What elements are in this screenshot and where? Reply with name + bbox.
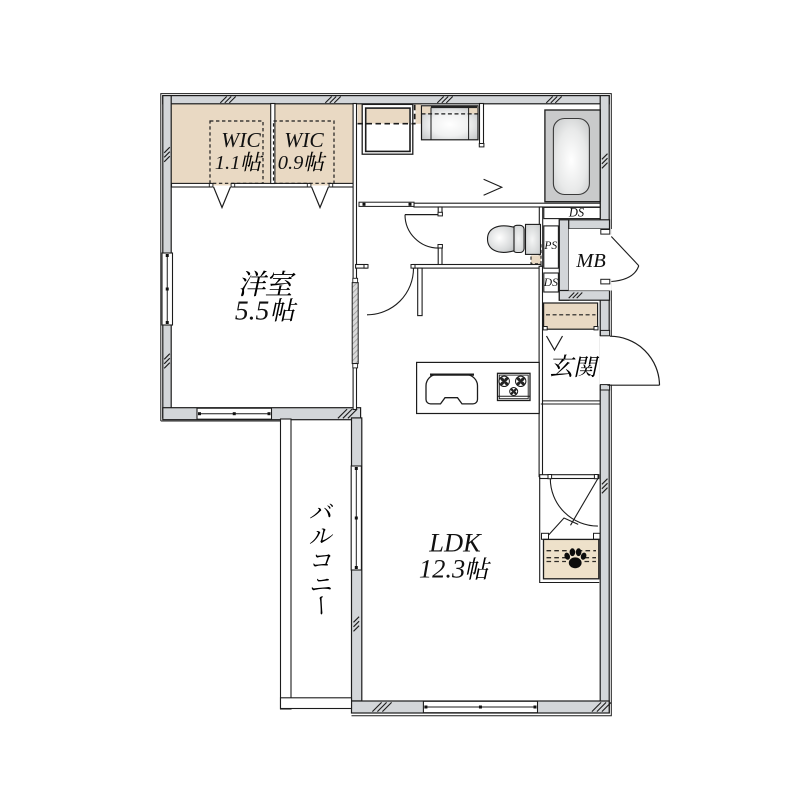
svg-text:1.1: 1.1 xyxy=(215,152,241,174)
svg-text:MB: MB xyxy=(575,250,606,272)
svg-text:DS: DS xyxy=(543,277,558,289)
svg-text:WIC: WIC xyxy=(221,128,261,152)
svg-text:5.5: 5.5 xyxy=(235,294,269,325)
svg-text:PS: PS xyxy=(543,240,557,252)
svg-text:WIC: WIC xyxy=(284,128,324,152)
svg-text:12.3: 12.3 xyxy=(419,553,465,583)
svg-text:0.9: 0.9 xyxy=(278,152,304,174)
svg-text:DS: DS xyxy=(568,206,585,220)
